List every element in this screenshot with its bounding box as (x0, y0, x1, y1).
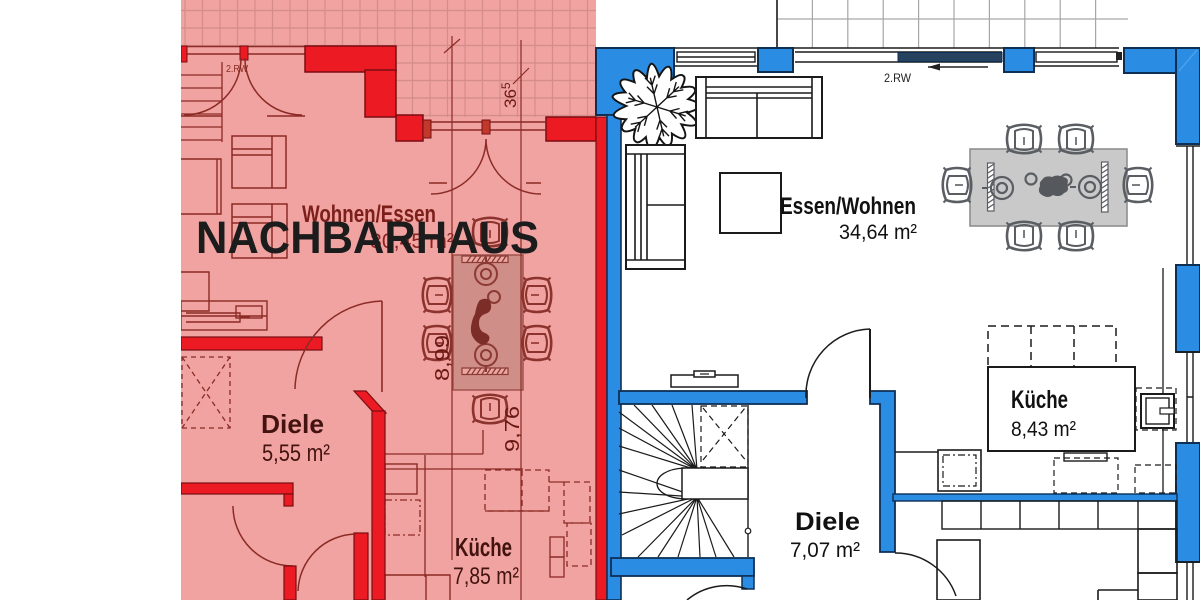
svg-text:Diele: Diele (261, 409, 324, 439)
svg-text:Essen/Wohnen: Essen/Wohnen (780, 193, 916, 220)
svg-text:Diele: Diele (795, 508, 860, 536)
svg-text:5,55 m²: 5,55 m² (262, 440, 330, 467)
svg-text:8,43 m²: 8,43 m² (1011, 418, 1076, 441)
svg-text:2.RW: 2.RW (226, 64, 248, 75)
svg-text:NACHBARHAUS: NACHBARHAUS (196, 212, 539, 263)
svg-text:34,64 m²: 34,64 m² (839, 221, 917, 244)
svg-text:7,85 m²: 7,85 m² (453, 563, 519, 590)
svg-text:9,76: 9,76 (502, 406, 524, 452)
svg-text:7,07 m²: 7,07 m² (790, 539, 860, 562)
svg-text:2.RW: 2.RW (884, 71, 912, 85)
svg-text:8,99: 8,99 (432, 335, 454, 381)
svg-text:Küche: Küche (1011, 386, 1068, 414)
svg-text:Küche: Küche (455, 532, 512, 562)
